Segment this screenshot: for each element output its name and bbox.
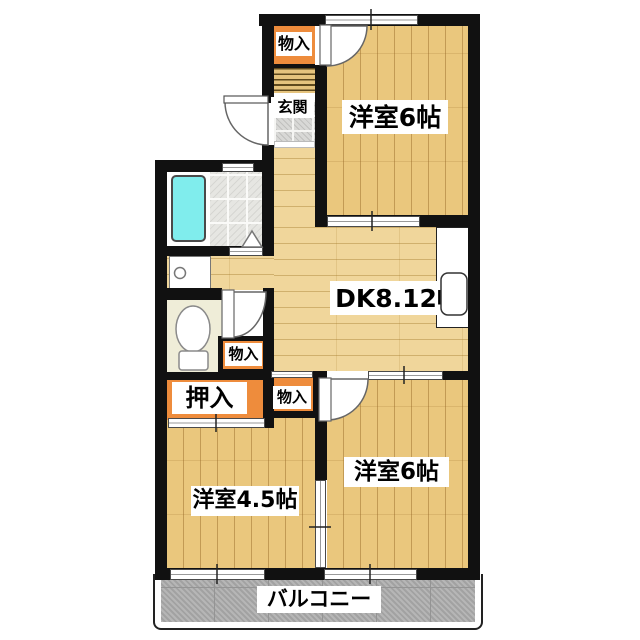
niche-unit-icon xyxy=(441,273,467,315)
toilet-door-leaf xyxy=(222,290,234,338)
toilet-door-arc xyxy=(233,292,266,337)
bedroom-right-door-leaf xyxy=(319,378,331,421)
toilet-tank-icon xyxy=(179,351,208,370)
folding-door-icon xyxy=(242,231,262,247)
symbols-overlay xyxy=(0,0,640,640)
toilet-bowl-icon xyxy=(176,306,210,352)
sink-drain-icon xyxy=(175,268,186,279)
bedroom-right-door-arc xyxy=(327,379,368,420)
bedroom-top-door-arc xyxy=(327,26,367,66)
floorplan: 物入 玄関 洋室6帖 DK8.12帖 物入 押入 物入 洋室4.5帖 洋室6帖 … xyxy=(0,0,640,640)
entrance-door-arc xyxy=(225,102,268,145)
entrance-door-leaf xyxy=(224,96,268,103)
bedroom-top-door-leaf xyxy=(320,25,331,65)
